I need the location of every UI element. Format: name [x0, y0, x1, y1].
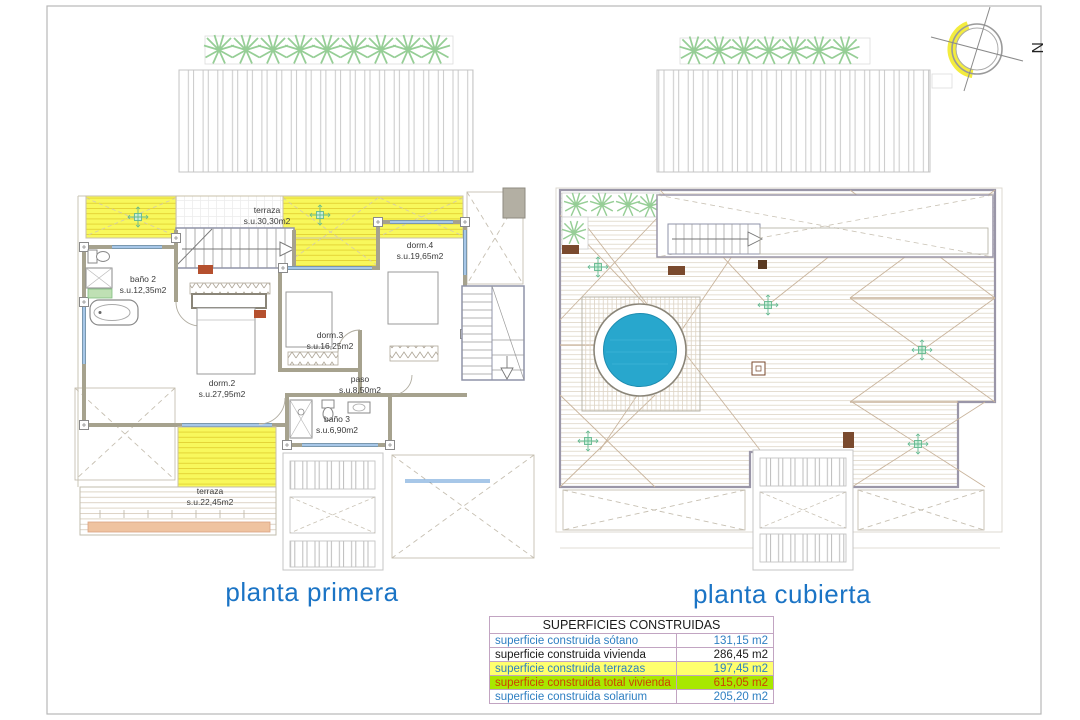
table-row: superficie construida sótano 131,15 m2 [490, 634, 774, 648]
room-area: s.u.16,25m2 [307, 341, 354, 351]
level-tag [198, 265, 213, 274]
left-plan-title: planta primera [212, 577, 412, 608]
terrace-yellow-bottom [178, 427, 276, 487]
left-plan: terraza s.u.30,30m2 baño 2 s.u.12,35m2 d… [75, 188, 534, 570]
level-tag [254, 310, 266, 318]
left-pergola [179, 36, 473, 172]
chimney-block [503, 188, 525, 218]
compass-crosshair [931, 7, 1023, 91]
row-value: 615,05 m2 [676, 676, 773, 690]
room-label: dorm.2 [209, 378, 236, 388]
room-label: terraza [254, 205, 281, 215]
exterior-stair [462, 286, 524, 380]
table-row: superficie construida terrazas 197,45 m2 [490, 662, 774, 676]
room-area: s.u.19,65m2 [397, 251, 444, 261]
row-label: superficie construida terrazas [490, 662, 677, 676]
room-label: baño 2 [130, 274, 156, 284]
plan-drawing: N [0, 0, 1080, 720]
table-row: superficie construida vivienda 286,45 m2 [490, 648, 774, 662]
row-label: superficie construida total vivienda [490, 676, 677, 690]
left-bottom-pergola [283, 453, 383, 570]
row-label: superficie construida vivienda [490, 648, 677, 662]
row-value: 197,45 m2 [676, 662, 773, 676]
right-bottom-pergola [753, 450, 853, 570]
room-label: paso [351, 374, 370, 384]
room-area: s.u.22,45m2 [187, 497, 234, 507]
compass-north-label: N [1028, 42, 1045, 54]
planter [88, 289, 112, 298]
right-plan-title: planta cubierta [682, 579, 882, 610]
bed-dorm4 [388, 272, 438, 361]
row-value: 131,15 m2 [676, 634, 773, 648]
surfaces-table: SUPERFICIES CONSTRUIDAS superficie const… [489, 616, 774, 704]
room-label: baño 3 [324, 414, 350, 424]
shower-bath2 [86, 268, 112, 288]
table-title: SUPERFICIES CONSTRUIDAS [490, 617, 774, 634]
architectural-plan-sheet: N [0, 0, 1080, 720]
room-label: terraza [197, 486, 224, 496]
pool [582, 297, 700, 411]
compass-rose: N [931, 7, 1045, 91]
room-area: s.u.12,35m2 [120, 285, 167, 295]
table-header-row: SUPERFICIES CONSTRUIDAS [490, 617, 774, 634]
row-value: 205,20 m2 [676, 690, 773, 704]
bathtub [90, 300, 138, 325]
room-area: s.u.6,90m2 [316, 425, 358, 435]
main-staircase [176, 228, 294, 268]
bed-dorm2 [190, 283, 270, 374]
bed-dorm3 [286, 292, 338, 365]
room-area: s.u.27,95m2 [199, 389, 246, 399]
toilet [88, 250, 110, 263]
room-area: s.u.8,50m2 [339, 385, 381, 395]
table-row: superficie construida solarium 205,20 m2 [490, 690, 774, 704]
row-value: 286,45 m2 [676, 648, 773, 662]
row-label: superficie construida sótano [490, 634, 677, 648]
room-label: dorm.4 [407, 240, 434, 250]
bottom-deck [80, 487, 276, 535]
roof-stairwell [657, 195, 993, 257]
table-row: superficie construida total vivienda 615… [490, 676, 774, 690]
room-area: s.u.30,30m2 [244, 216, 291, 226]
right-plan [556, 188, 1002, 570]
room-label: dorm.3 [317, 330, 344, 340]
row-label: superficie construida solarium [490, 690, 677, 704]
